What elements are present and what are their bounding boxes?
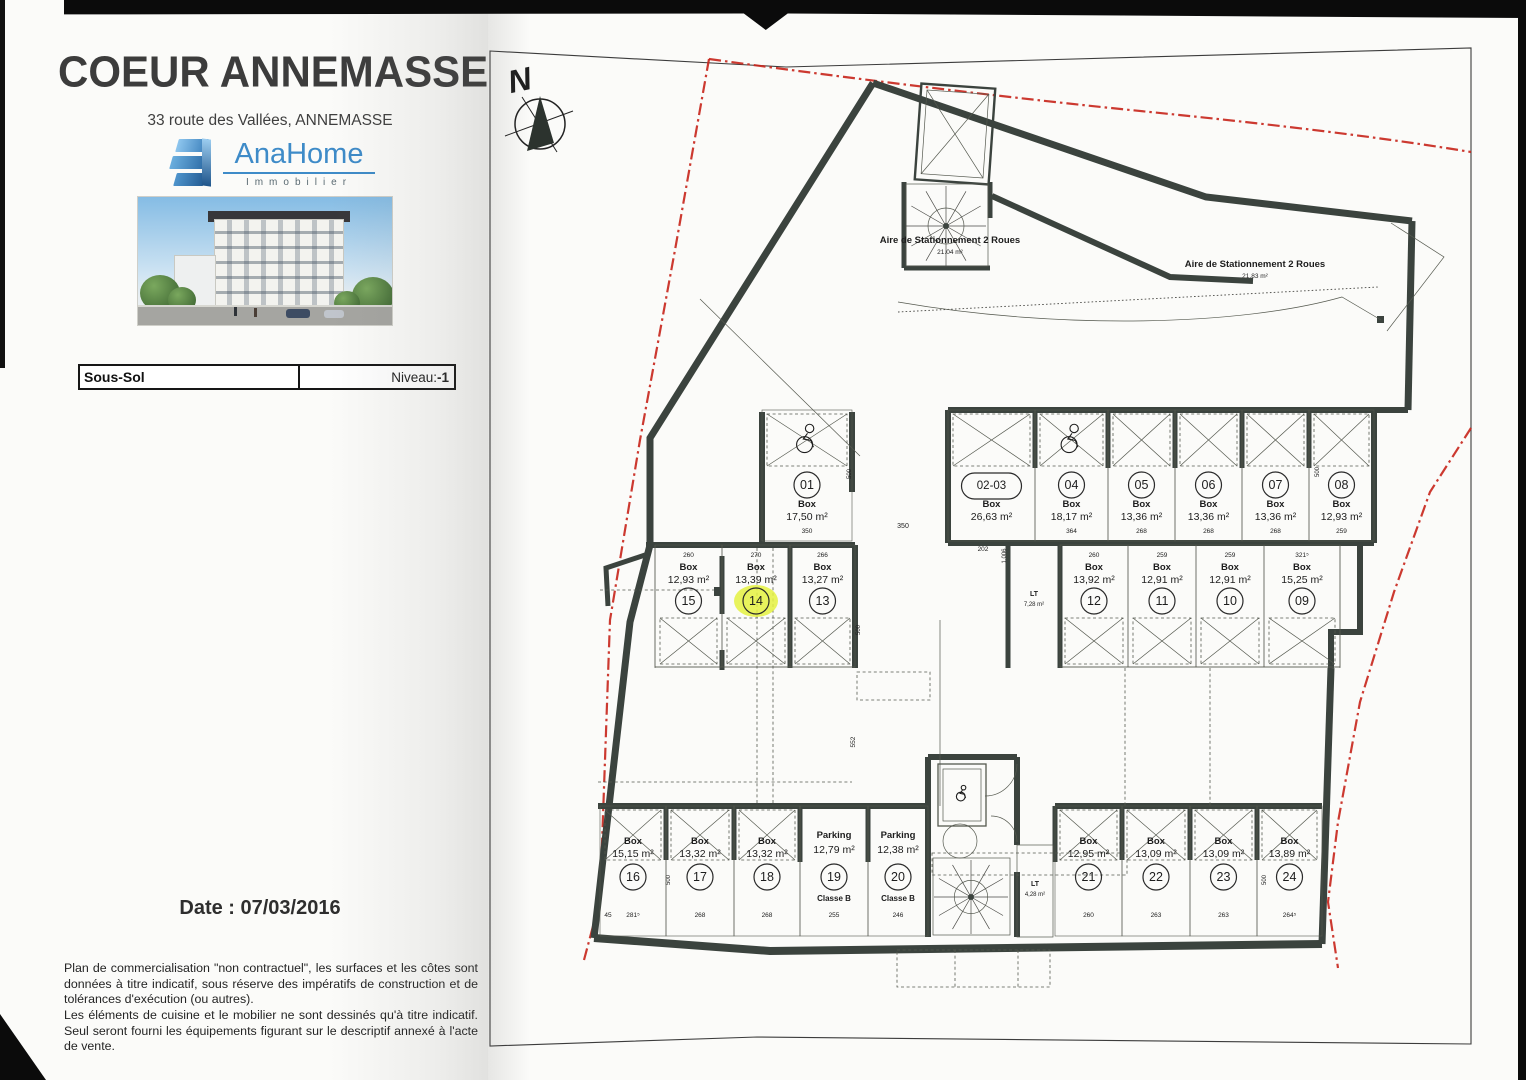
box-type: Box: [624, 836, 643, 847]
logo-name: AnaHome: [235, 140, 364, 169]
box-dim: 260: [1089, 552, 1100, 559]
box-number: 10: [1223, 594, 1237, 608]
box-area: 13,09 m²: [1135, 848, 1177, 860]
dim-label: 500: [666, 874, 672, 885]
parking-box-11: 11Box12,91 m²259: [1128, 545, 1196, 667]
box-number: 20: [891, 870, 905, 884]
bike-area-2-label: Aire de Stationnement 2 Roues: [1185, 259, 1325, 270]
parking-box-20: 20Parking12,38 m²Classe B246: [868, 806, 928, 936]
parking-box-24: 24Box13,89 m²264⁵: [1257, 806, 1322, 936]
box-area: 12,38 m²: [877, 844, 919, 856]
box-type: Box: [983, 499, 1002, 510]
box-dim: 268: [1203, 528, 1214, 535]
box-area: 13,09 m²: [1203, 848, 1245, 860]
parking-box-22: 22Box13,09 m²263: [1122, 806, 1190, 936]
parking-box-13: 13Box13,27 m²266: [790, 545, 855, 667]
box-number: 22: [1149, 870, 1163, 884]
box-area: 12,79 m²: [813, 844, 855, 856]
box-type: Box: [1215, 836, 1234, 847]
parking-box-19: 19Parking12,79 m²Classe B255: [800, 806, 868, 936]
box-type: Box: [1085, 562, 1104, 573]
logo-subtitle: Immobilier: [246, 177, 352, 188]
bike-area-1-size: 21.04 m²: [937, 249, 963, 256]
niveau-value: -1: [437, 370, 449, 385]
box-number: 01: [800, 478, 814, 492]
photo-person: [254, 308, 257, 317]
box-type: Box: [1147, 836, 1166, 847]
dim-label: 350: [897, 523, 909, 530]
project-title: COEUR ANNEMASSE: [58, 47, 482, 97]
photo-person: [234, 307, 237, 316]
box-number: 16: [626, 870, 640, 884]
box-dim: 264⁵: [1283, 912, 1297, 919]
parking-box-23: 23Box13,09 m²263: [1190, 806, 1257, 936]
box-area: 15,15 m²: [612, 848, 654, 860]
box-number: 05: [1135, 478, 1149, 492]
box-number: 08: [1335, 478, 1349, 492]
dim-label: 500: [1315, 466, 1321, 477]
box-dim: 268: [1270, 528, 1281, 535]
legal-disclaimer: Plan de commercialisation "non contractu…: [64, 961, 478, 1055]
box-area: 12,95 m²: [1068, 848, 1110, 860]
parking-box-21: 21Box12,95 m²260: [1055, 806, 1122, 936]
box-number: 11: [1156, 594, 1169, 608]
box-area: 12,91 m²: [1141, 574, 1183, 586]
dim-label: 500: [1262, 874, 1268, 885]
box-dim: 270: [751, 552, 762, 559]
box-type: Box: [1133, 499, 1152, 510]
floor-plan-svg: N: [487, 38, 1479, 1052]
date-line: Date : 07/03/2016: [100, 897, 420, 920]
box-area: 13,92 m²: [1073, 574, 1115, 586]
box-area: 13,36 m²: [1188, 511, 1230, 523]
parking-box-17: 17Box13,32 m²268: [666, 806, 734, 936]
scan-fold-shadow-top: [64, 0, 1526, 30]
lt2-label: LT: [1031, 881, 1040, 888]
dim-label: 500: [856, 624, 862, 635]
box-dim: 364: [1066, 528, 1077, 535]
box-number: 09: [1295, 594, 1309, 608]
bike-area-1-label: Aire de Stationnement 2 Roues: [880, 235, 1020, 246]
spiral-staircase-bottom: [933, 858, 1010, 935]
wheelchair-icon: [956, 785, 965, 801]
box-type: Box: [1221, 562, 1240, 573]
box-dim: 259: [1157, 552, 1168, 559]
compass-needle: [527, 96, 554, 151]
box-number: 24: [1283, 870, 1297, 884]
box-dim: 268: [695, 912, 706, 919]
floor-plan-sheet: N: [487, 38, 1479, 1052]
box-type: Box: [1153, 562, 1172, 573]
box-area: 13,32 m²: [679, 848, 721, 860]
box-type: Box: [798, 499, 817, 510]
box-type: Box: [1080, 836, 1099, 847]
box-number: 14: [749, 594, 763, 608]
north-label: N: [505, 60, 536, 100]
box-class: Classe B: [817, 894, 851, 903]
parking-box-04: 04Box18,17 m²364: [1035, 410, 1108, 541]
box-number: 15: [682, 594, 696, 608]
lt-rooms: LT 7,28 m² LT 4,28 m²: [1024, 591, 1045, 898]
box-dim2: 45: [604, 912, 612, 919]
lt1-size: 7,28 m²: [1024, 602, 1044, 608]
photo-car: [324, 310, 344, 318]
north-compass: N: [505, 60, 573, 152]
box-dim: 246: [893, 912, 904, 919]
niveau-label: Niveau:: [391, 370, 437, 385]
box-area: 26,63 m²: [971, 511, 1013, 523]
box-number: 13: [816, 594, 830, 608]
box-dim: 350: [802, 528, 813, 535]
box-number: 19: [827, 870, 841, 884]
wheelchair-icon: [956, 785, 965, 801]
logo-underline: [223, 172, 375, 174]
box-type: Box: [1063, 499, 1082, 510]
wall-marker: [714, 587, 723, 596]
box-dim: 259: [1225, 552, 1236, 559]
box-type: Box: [747, 562, 766, 573]
scan-edge-right: [1518, 0, 1526, 1080]
level-name: Sous-Sol: [80, 366, 298, 388]
level-number: Niveau: -1: [298, 366, 454, 388]
box-area: 15,25 m²: [1281, 574, 1323, 586]
box-area: 12,91 m²: [1209, 574, 1251, 586]
box-dim: 321⁵: [1295, 552, 1309, 559]
level-bar: Sous-Sol Niveau: -1: [78, 364, 456, 390]
parking-box-10: 10Box12,91 m²259: [1196, 545, 1264, 667]
box-class: Classe B: [881, 894, 915, 903]
box-type: Box: [680, 562, 699, 573]
dim-label: 1.006: [1002, 548, 1008, 564]
box-area: 12,93 m²: [1321, 511, 1363, 523]
box-dim: 259: [1336, 528, 1347, 535]
box-area: 13,39 m²: [735, 574, 777, 586]
box-number: 12: [1087, 594, 1101, 608]
box-type: Box: [691, 836, 710, 847]
scan-edge-left: [0, 0, 5, 368]
box-dim: 263: [1218, 912, 1229, 919]
bike-area-2-size: 21.83 m²: [1242, 273, 1268, 280]
parking-box-02-03: 02-03Box26,63 m²: [948, 410, 1035, 541]
box-area: 13,89 m²: [1269, 848, 1311, 860]
box-number: 06: [1202, 478, 1216, 492]
box-area: 13,36 m²: [1255, 511, 1297, 523]
box-number: 07: [1269, 478, 1283, 492]
parking-box-07: 07Box13,36 m²268: [1242, 410, 1309, 541]
box-number: 18: [760, 870, 774, 884]
scan-corner-shadow: [0, 1014, 46, 1080]
box-number: 21: [1082, 870, 1096, 884]
disclaimer-paragraph-1: Plan de commercialisation "non contractu…: [64, 961, 478, 1008]
dim-label: 202: [978, 546, 989, 553]
box-area: 12,93 m²: [668, 574, 710, 586]
box-number: 17: [693, 870, 707, 884]
box-dim: 260: [1083, 912, 1094, 919]
box-area: 13,32 m²: [746, 848, 788, 860]
parking-box-05: 05Box13,36 m²268: [1108, 410, 1175, 541]
box-type: Parking: [817, 830, 852, 841]
box-dim: 266: [817, 552, 828, 559]
box-type: Box: [1200, 499, 1219, 510]
box-area: 13,27 m²: [802, 574, 844, 586]
construction-lines: [598, 223, 1444, 987]
parking-box-14: 14Box13,39 m²270: [722, 545, 790, 667]
box-dim: 263: [1151, 912, 1162, 919]
photo-car: [286, 309, 310, 318]
box-area: 17,50 m²: [786, 511, 828, 523]
box-dim: 268: [762, 912, 773, 919]
dim-label: 552: [850, 736, 857, 747]
box-number: 02-03: [977, 480, 1006, 492]
anahome-logo: AnaHome Immobilier: [62, 133, 478, 195]
parking-box-06: 06Box13,36 m²268: [1175, 410, 1242, 541]
box-number: 04: [1065, 478, 1079, 492]
box-area: 13,36 m²: [1121, 511, 1163, 523]
box-type: Box: [1281, 836, 1300, 847]
box-dim: 268: [1136, 528, 1147, 535]
bike-parking-areas: Aire de Stationnement 2 Roues 21.04 m² A…: [880, 235, 1325, 280]
photo-road: [138, 305, 393, 326]
building-photo: [137, 196, 393, 326]
box-type: Box: [758, 836, 777, 847]
disclaimer-paragraph-2: Les éléments de cuisine et le mobilier n…: [64, 1008, 478, 1055]
parking-box-01: 01Box17,50 m²350: [762, 410, 852, 541]
box-dim: 281⁵: [626, 912, 640, 919]
box-dim: 260: [683, 552, 694, 559]
parking-box-18: 18Box13,32 m²268: [734, 806, 800, 936]
box-type: Box: [1333, 499, 1352, 510]
project-address: 33 route des Vallées, ANNEMASSE: [62, 112, 478, 130]
lt1-label: LT: [1030, 591, 1039, 598]
box-number: 23: [1217, 870, 1231, 884]
box-type: Box: [814, 562, 833, 573]
box-dim: 255: [829, 912, 840, 919]
box-area: 18,17 m²: [1051, 511, 1093, 523]
box-type: Box: [1267, 499, 1286, 510]
photo-building: [214, 219, 344, 307]
parking-box-15: 15Box12,93 m²260: [655, 545, 722, 667]
anahome-logo-icon: [165, 137, 213, 191]
parking-box-12: 12Box13,92 m²260: [1060, 545, 1128, 667]
box-type: Parking: [881, 830, 916, 841]
box-type: Box: [1293, 562, 1312, 573]
lt2-size: 4,28 m²: [1025, 892, 1045, 898]
